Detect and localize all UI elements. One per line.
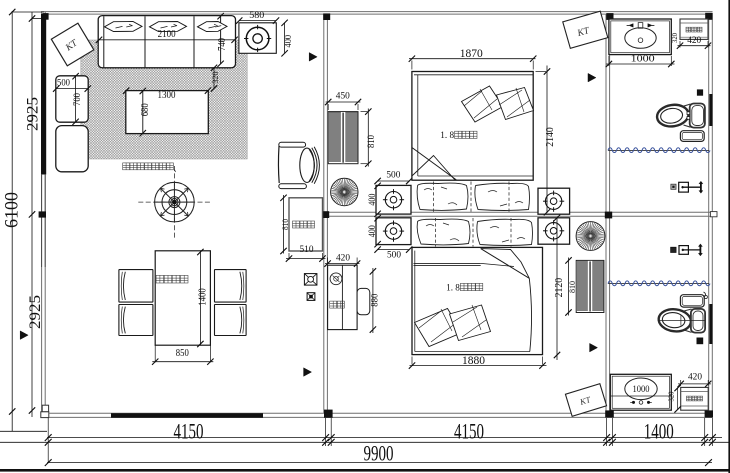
svg-text:1000: 1000: [631, 53, 655, 64]
svg-text:1880: 1880: [462, 353, 485, 367]
svg-text:1. 8: 1. 8: [446, 282, 460, 292]
svg-text:420: 420: [688, 373, 702, 383]
svg-text:400: 400: [368, 193, 378, 205]
svg-text:500: 500: [387, 250, 401, 260]
svg-text:1. 8: 1. 8: [440, 130, 454, 140]
svg-text:420: 420: [687, 36, 701, 46]
svg-text:9900: 9900: [364, 440, 394, 465]
svg-text:700: 700: [72, 93, 82, 106]
svg-text:320: 320: [668, 391, 676, 401]
svg-text:850: 850: [176, 348, 189, 359]
svg-text:2140: 2140: [545, 127, 556, 147]
svg-text:810: 810: [367, 135, 377, 148]
svg-text:2925: 2925: [27, 295, 44, 329]
svg-text:1000: 1000: [633, 385, 650, 395]
svg-text:740: 740: [217, 38, 228, 51]
svg-text:1400: 1400: [197, 288, 208, 306]
svg-text:400: 400: [368, 225, 378, 237]
svg-text:4150: 4150: [174, 419, 204, 444]
svg-text:500: 500: [57, 77, 70, 87]
svg-text:880: 880: [371, 293, 381, 306]
svg-text:420: 420: [336, 253, 350, 263]
svg-text:810: 810: [567, 281, 577, 293]
svg-text:1400: 1400: [644, 419, 674, 444]
svg-text:320: 320: [671, 33, 679, 43]
svg-text:680: 680: [140, 103, 151, 116]
svg-text:500: 500: [386, 171, 400, 181]
svg-text:400: 400: [284, 35, 294, 48]
svg-text:450: 450: [336, 91, 350, 101]
svg-text:6100: 6100: [2, 192, 23, 228]
svg-text:1300: 1300: [158, 90, 176, 101]
svg-text:580: 580: [249, 11, 264, 21]
svg-text:510: 510: [300, 245, 314, 255]
svg-text:320: 320: [210, 72, 220, 84]
svg-text:2925: 2925: [25, 97, 42, 131]
svg-text:1870: 1870: [460, 46, 483, 60]
svg-text:2100: 2100: [158, 29, 176, 40]
svg-text:4150: 4150: [454, 419, 484, 444]
svg-text:810: 810: [281, 219, 290, 230]
svg-text:2120: 2120: [554, 278, 565, 298]
